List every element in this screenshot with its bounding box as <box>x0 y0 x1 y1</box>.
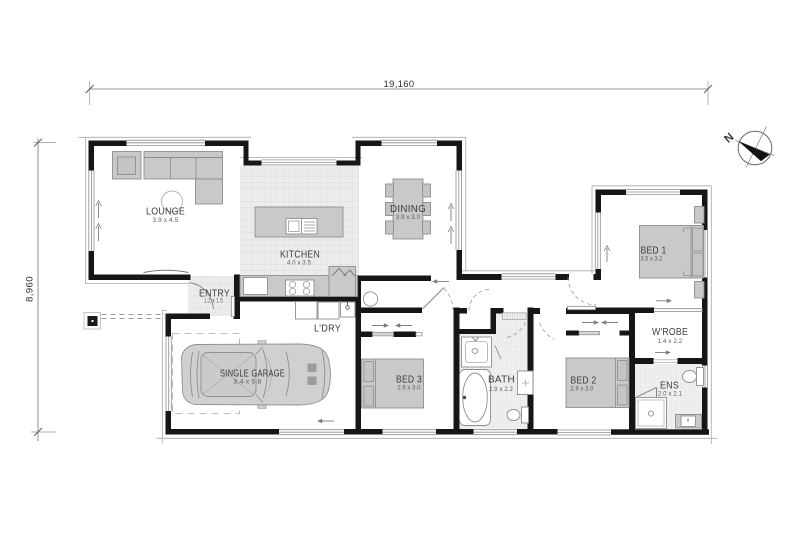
svg-text:19,160: 19,160 <box>384 78 415 89</box>
svg-text:1.4 x 2.2: 1.4 x 2.2 <box>658 338 683 345</box>
svg-text:8,960: 8,960 <box>24 276 35 302</box>
svg-text:2.9 x 2.2: 2.9 x 2.2 <box>489 386 513 393</box>
svg-text:3.9 x 3.0: 3.9 x 3.0 <box>396 214 420 221</box>
svg-text:2.9 x 3.0: 2.9 x 3.0 <box>571 386 594 393</box>
svg-text:4.0 x 3.5: 4.0 x 3.5 <box>287 260 311 267</box>
svg-text:3.5 x 3.2: 3.5 x 3.2 <box>641 256 663 263</box>
svg-text:BATH: BATH <box>488 375 515 386</box>
svg-text:1.2 x 1.5: 1.2 x 1.5 <box>204 298 223 305</box>
svg-text:L'DRY: L'DRY <box>314 324 341 335</box>
svg-text:LOUNGE: LOUNGE <box>146 207 185 218</box>
svg-text:W'ROBE: W'ROBE <box>652 327 688 338</box>
svg-text:3.4 x 5.8: 3.4 x 5.8 <box>234 379 262 386</box>
svg-text:2.0 x 2.1: 2.0 x 2.1 <box>658 391 682 398</box>
svg-text:2.9 x 3.0: 2.9 x 3.0 <box>398 385 421 392</box>
svg-text:3.9 x 4.5: 3.9 x 4.5 <box>153 217 179 224</box>
